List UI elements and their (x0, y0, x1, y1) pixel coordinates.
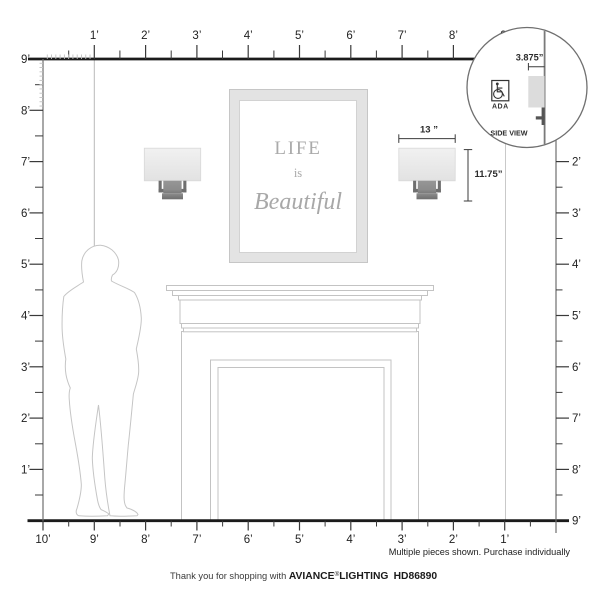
svg-text:8’: 8’ (21, 105, 30, 117)
svg-text:SIDE VIEW: SIDE VIEW (490, 129, 527, 138)
svg-text:6’: 6’ (346, 30, 355, 42)
svg-text:3’: 3’ (192, 30, 201, 42)
svg-text:2’: 2’ (449, 534, 458, 546)
svg-text:3’: 3’ (572, 208, 581, 220)
svg-text:4’: 4’ (244, 30, 253, 42)
svg-text:5’: 5’ (21, 259, 30, 271)
svg-text:2’: 2’ (572, 157, 581, 169)
svg-text:Beautiful: Beautiful (254, 189, 342, 215)
svg-text:3’: 3’ (398, 534, 407, 546)
svg-text:4’: 4’ (346, 534, 355, 546)
svg-text:LIFE: LIFE (274, 138, 321, 159)
svg-text:10’: 10’ (35, 534, 50, 546)
svg-text:Thank you for shopping with AV: Thank you for shopping with AVIANCE®LIGH… (170, 570, 437, 582)
svg-text:6’: 6’ (572, 362, 581, 374)
svg-text:is: is (294, 166, 302, 180)
svg-text:7’: 7’ (192, 534, 201, 546)
svg-text:5’: 5’ (295, 534, 304, 546)
svg-text:1’: 1’ (90, 30, 99, 42)
svg-text:7’: 7’ (21, 157, 30, 169)
svg-text:Multiple pieces shown. Purchas: Multiple pieces shown. Purchase individu… (389, 547, 571, 557)
svg-text:4’: 4’ (21, 311, 30, 323)
svg-text:5’: 5’ (572, 311, 581, 323)
svg-text:4’: 4’ (572, 259, 581, 271)
svg-text:13 ”: 13 ” (420, 125, 438, 136)
svg-text:8’: 8’ (572, 464, 581, 476)
svg-text:9’: 9’ (572, 516, 581, 528)
svg-text:2’: 2’ (141, 30, 150, 42)
svg-text:1’: 1’ (500, 534, 509, 546)
svg-text:11.75”: 11.75” (475, 169, 503, 180)
svg-text:7’: 7’ (572, 413, 581, 425)
svg-text:ADA: ADA (492, 104, 509, 111)
svg-text:9’: 9’ (21, 54, 30, 66)
svg-text:8’: 8’ (141, 534, 150, 546)
svg-text:1’: 1’ (21, 464, 30, 476)
svg-text:6’: 6’ (244, 534, 253, 546)
svg-text:8’: 8’ (449, 30, 458, 42)
svg-text:2’: 2’ (21, 413, 30, 425)
svg-text:6’: 6’ (21, 208, 30, 220)
svg-text:5’: 5’ (295, 30, 304, 42)
svg-text:3.875”: 3.875” (516, 53, 544, 63)
svg-text:7’: 7’ (398, 30, 407, 42)
svg-text:3’: 3’ (21, 362, 30, 374)
svg-text:9’: 9’ (90, 534, 99, 546)
